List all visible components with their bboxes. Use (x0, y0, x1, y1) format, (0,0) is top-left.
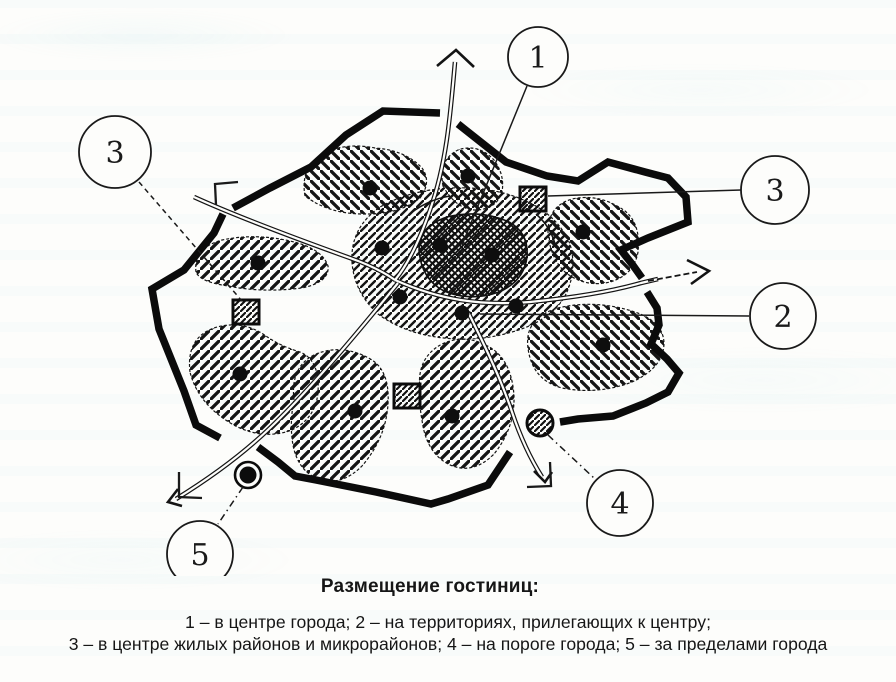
scanned-book-figure: 1 3 3 2 4 5 Размеще (0, 0, 896, 682)
hotel-dot-marker (433, 238, 448, 253)
hotel-dot-marker (393, 290, 408, 305)
callout-1: 1 (508, 27, 568, 87)
city-plan-diagram: 1 3 3 2 4 5 (0, 0, 896, 576)
callout-1-label: 1 (528, 41, 547, 76)
leader-5 (218, 487, 243, 524)
district-square-marker (520, 187, 546, 211)
legend-line-1: 1 – в центре города; 2 – на территориях,… (0, 612, 896, 634)
callout-5-label: 5 (190, 538, 209, 573)
district-east (528, 304, 664, 390)
hotel-dot-marker (455, 306, 470, 321)
hotel-dot-marker (375, 241, 390, 256)
bracket-top-left-icon (215, 182, 238, 205)
city-gate-hotel-marker (527, 410, 553, 436)
hotel-dot-marker (509, 299, 524, 314)
hotel-dot-marker (445, 409, 460, 424)
hotel-dot-marker (461, 169, 476, 184)
district-square-marker (233, 300, 259, 324)
callout-2: 2 (750, 283, 816, 349)
callout-3-right-label: 3 (765, 174, 784, 209)
callout-4-label: 4 (610, 487, 629, 522)
arrow-east-icon (687, 260, 709, 284)
hotel-dot-marker (596, 338, 611, 353)
hotel-dot-marker (251, 256, 266, 271)
figure-caption: Размещение гостиниц: 1 – в центре города… (0, 576, 896, 655)
callout-5: 5 (167, 521, 233, 576)
callout-4: 4 (587, 470, 653, 536)
caption-title: Размещение гостиниц: (0, 576, 878, 598)
district-south-center (419, 339, 514, 468)
callout-3-right: 3 (741, 156, 809, 224)
hotel-dot-marker (485, 248, 500, 263)
district-south-left (291, 350, 388, 481)
hotel-dot-marker (576, 225, 591, 240)
district-square-marker (394, 384, 420, 408)
city-centre-core (419, 214, 527, 297)
callout-3-left-label: 3 (105, 136, 124, 171)
hotel-dot-marker (233, 367, 248, 382)
leader-4 (548, 435, 595, 479)
callout-2-label: 2 (773, 300, 792, 335)
hotel-dot-marker (363, 181, 378, 196)
leader-3-right (548, 190, 741, 196)
hotel-dot-marker (348, 404, 363, 419)
callout-3-left: 3 (79, 116, 151, 188)
legend-line-2: 3 – в центре жилых районов и микрорайоно… (0, 634, 896, 656)
outside-city-hotel-marker (235, 462, 261, 488)
